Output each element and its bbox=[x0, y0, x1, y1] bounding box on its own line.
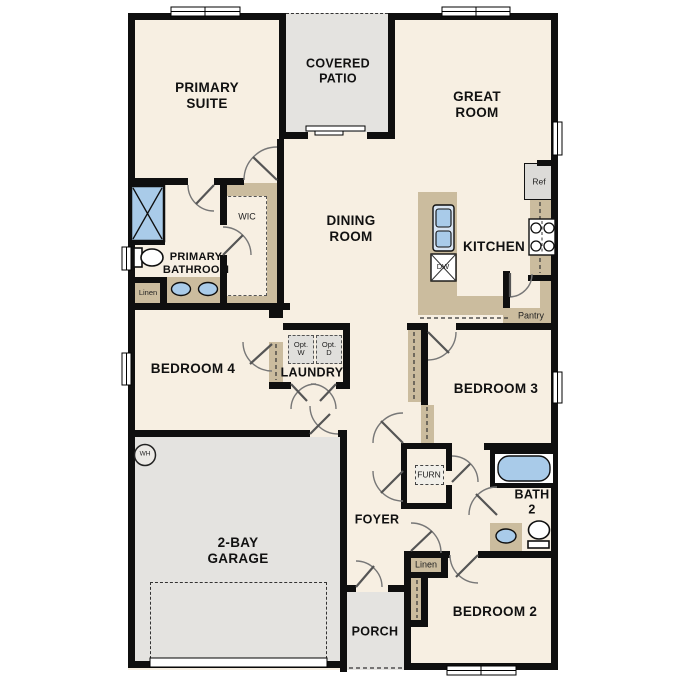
wall-segment bbox=[283, 323, 350, 330]
wall-segment bbox=[404, 663, 558, 670]
label-water-heater: WH bbox=[140, 452, 151, 459]
wall-segment bbox=[269, 310, 283, 318]
wall-segment bbox=[404, 620, 428, 627]
room-label-primary-suite: PRIMARY SUITE bbox=[175, 80, 239, 112]
label-opt-washer: Opt. W bbox=[294, 341, 308, 357]
wall-segment bbox=[128, 277, 167, 283]
wall-segment bbox=[404, 551, 411, 670]
room-label-bedroom3: BEDROOM 3 bbox=[454, 381, 538, 397]
label-opt-dryer: Opt. D bbox=[322, 341, 336, 357]
wall-segment bbox=[401, 503, 452, 509]
floor-plan: PRIMARY SUITE COVERED PATIO GREAT ROOM D… bbox=[0, 0, 687, 687]
kitchen-island bbox=[418, 192, 457, 302]
wall-segment bbox=[367, 132, 395, 139]
wall-segment bbox=[401, 443, 407, 509]
bath2-vanity bbox=[490, 523, 522, 551]
wall-segment bbox=[128, 178, 188, 185]
wall-segment bbox=[128, 13, 135, 668]
label-pantry: Pantry bbox=[518, 311, 544, 320]
wall-segment bbox=[503, 271, 510, 308]
room-label-bedroom2: BEDROOM 2 bbox=[453, 604, 537, 620]
room-label-covered-patio: COVERED PATIO bbox=[306, 56, 370, 86]
wall-segment bbox=[128, 303, 290, 310]
wall-segment bbox=[269, 382, 291, 389]
wall-segment bbox=[392, 13, 558, 20]
garage-door-outline bbox=[150, 582, 327, 659]
wall-segment bbox=[338, 430, 347, 437]
wall-segment bbox=[421, 330, 428, 405]
wall-segment bbox=[484, 443, 558, 450]
wall-segment bbox=[128, 661, 347, 668]
wall-segment bbox=[407, 323, 428, 330]
room-label-foyer: FOYER bbox=[355, 513, 400, 528]
wall-strip-hall3 bbox=[408, 330, 421, 402]
room-label-bedroom4: BEDROOM 4 bbox=[151, 361, 235, 377]
room-label-kitchen: KITCHEN bbox=[463, 239, 525, 255]
wall-segment bbox=[388, 13, 395, 139]
wall-segment bbox=[528, 275, 558, 281]
room-label-bath2: BATH 2 bbox=[515, 487, 550, 517]
wall-segment bbox=[446, 443, 452, 471]
label-linen-hall: Linen bbox=[415, 560, 437, 569]
wall-segment bbox=[347, 585, 356, 592]
kitchen-wall-counter bbox=[530, 198, 551, 275]
room-label-garage: 2-BAY GARAGE bbox=[207, 535, 268, 567]
wall-segment bbox=[537, 160, 558, 166]
label-ref: Ref bbox=[532, 178, 545, 187]
wall-segment bbox=[456, 323, 558, 330]
label-furnace: FURN bbox=[417, 471, 441, 480]
label-linen-bath: Linen bbox=[139, 289, 157, 297]
wall-segment bbox=[214, 178, 244, 185]
wall-segment bbox=[388, 585, 404, 592]
room-label-primary-bathroom: PRIMARY BATHROOM bbox=[163, 251, 229, 277]
wall-segment bbox=[128, 13, 286, 20]
room-label-great-room: GREAT ROOM bbox=[453, 89, 501, 121]
wall-segment bbox=[478, 551, 558, 558]
room-label-porch: PORCH bbox=[352, 625, 399, 640]
wall-segment bbox=[343, 323, 350, 389]
wall-segment bbox=[411, 572, 448, 578]
primary-vanity bbox=[163, 277, 222, 303]
wall-segment bbox=[446, 485, 452, 509]
wall-segment bbox=[128, 238, 165, 245]
kitchen-island-leg bbox=[418, 296, 508, 315]
wall-segment bbox=[277, 139, 284, 310]
wall-segment bbox=[128, 430, 310, 437]
wall-strip-bed3 bbox=[421, 405, 434, 443]
wall-segment bbox=[336, 382, 350, 389]
wall-segment bbox=[220, 185, 227, 225]
wall-segment bbox=[401, 443, 452, 449]
room-label-dining-room: DINING ROOM bbox=[326, 213, 375, 245]
label-dw: DW bbox=[437, 263, 450, 271]
wall-segment bbox=[551, 13, 558, 670]
room-label-laundry: LAUNDRY bbox=[281, 366, 344, 381]
wall-segment bbox=[279, 132, 308, 139]
room-label-wic: WIC bbox=[238, 212, 256, 221]
wall-segment bbox=[279, 13, 286, 139]
wall-segment bbox=[340, 430, 347, 672]
